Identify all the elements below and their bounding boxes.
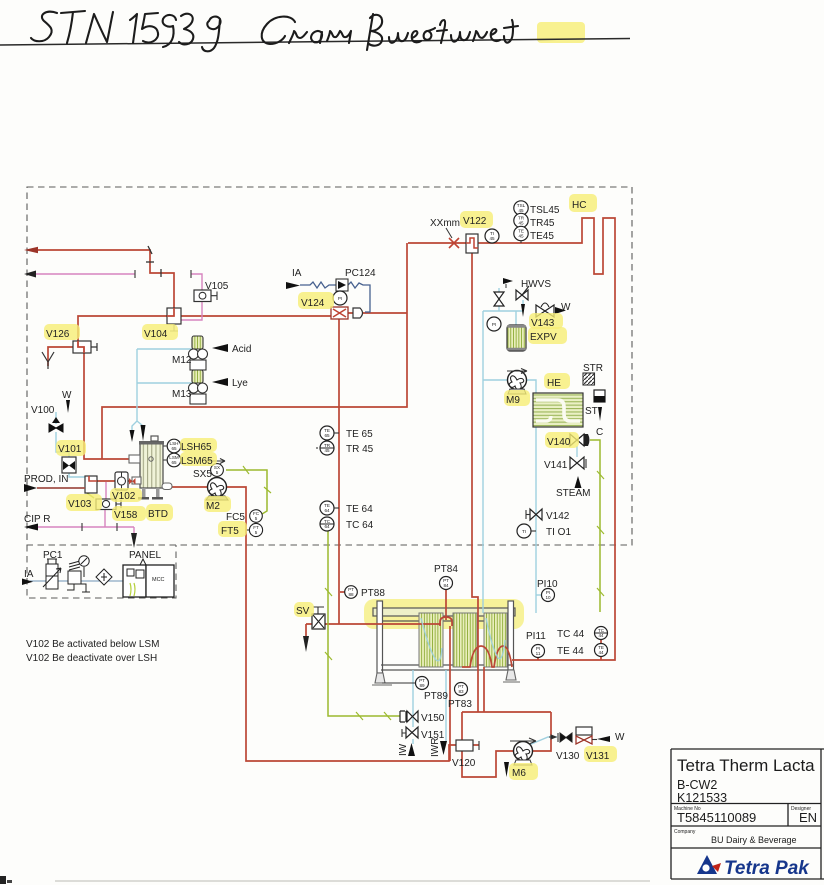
svg-text:Company: Company (674, 829, 696, 835)
svg-text:65: 65 (324, 433, 330, 438)
svg-text:84: 84 (443, 583, 449, 588)
svg-text:Tetra Pak: Tetra Pak (724, 858, 810, 879)
svg-text:Lye: Lye (232, 378, 248, 389)
svg-text:PC124: PC124 (345, 268, 376, 279)
svg-text:V124: V124 (301, 298, 325, 309)
svg-text:TI O1: TI O1 (546, 527, 571, 538)
svg-text:FT5: FT5 (221, 526, 239, 537)
svg-text:M2: M2 (206, 501, 220, 512)
svg-text:V141: V141 (544, 460, 568, 471)
svg-text:V130: V130 (556, 751, 580, 762)
svg-text:TE45: TE45 (530, 231, 554, 242)
svg-text:44: 44 (598, 633, 604, 638)
svg-text:HC: HC (572, 200, 586, 211)
svg-text:IA: IA (292, 268, 302, 279)
svg-text:PROD, IN: PROD, IN (24, 474, 68, 485)
svg-text:TR 45: TR 45 (346, 444, 374, 455)
svg-text:FC5: FC5 (226, 512, 245, 523)
svg-text:PT89: PT89 (424, 691, 448, 702)
svg-text:88: 88 (348, 592, 354, 597)
svg-text:W: W (615, 732, 625, 743)
svg-text:TC 44: TC 44 (557, 629, 585, 640)
svg-text:45: 45 (518, 221, 524, 226)
svg-text:CIP R: CIP R (24, 514, 51, 525)
svg-text:LSH65: LSH65 (181, 442, 212, 453)
svg-text:V103: V103 (68, 499, 92, 510)
svg-text:PT88: PT88 (361, 588, 385, 599)
svg-text:PT84: PT84 (434, 564, 458, 575)
svg-text:Tetra Therm Lacta: Tetra Therm Lacta (677, 756, 815, 775)
svg-text:T5845110089: T5845110089 (677, 810, 756, 825)
svg-text:45: 45 (518, 234, 524, 239)
svg-text:V150: V150 (421, 713, 445, 724)
svg-text:V100: V100 (31, 405, 55, 416)
svg-text:PI: PI (492, 322, 496, 327)
svg-text:IWR: IWR (430, 738, 441, 757)
svg-text:EXPV: EXPV (530, 332, 557, 343)
svg-text:IW: IW (398, 743, 409, 756)
svg-text:PI: PI (338, 296, 342, 301)
svg-text:89: 89 (419, 683, 425, 688)
svg-text:C: C (596, 427, 603, 438)
svg-text:V143: V143 (531, 318, 555, 329)
svg-text:PI11: PI11 (526, 631, 546, 642)
svg-text:STEAM: STEAM (556, 488, 590, 499)
svg-text:11: 11 (536, 651, 541, 656)
svg-text:LSM65: LSM65 (181, 456, 213, 467)
svg-text:V102 Be deactivate over LS: V102 Be deactivate over LSH (26, 653, 157, 664)
svg-text:K121533: K121533 (677, 791, 727, 805)
svg-text:PI10: PI10 (537, 579, 558, 590)
svg-text:IA: IA (24, 569, 34, 580)
svg-text:PANEL: PANEL (129, 550, 161, 561)
svg-text:STR: STR (583, 363, 603, 374)
svg-text:HWVS: HWVS (521, 279, 551, 290)
svg-text:TR45: TR45 (530, 218, 555, 229)
svg-text:BTD: BTD (148, 509, 168, 520)
svg-text:V101: V101 (58, 444, 82, 455)
svg-text:5: 5 (255, 516, 258, 521)
svg-text:5: 5 (216, 470, 219, 475)
svg-text:65: 65 (171, 446, 177, 451)
svg-text:XXmm: XXmm (430, 218, 460, 229)
svg-text:B-CW2: B-CW2 (677, 778, 717, 792)
svg-text:TC 64: TC 64 (346, 520, 374, 531)
svg-text:44: 44 (598, 650, 604, 655)
svg-text:V140: V140 (547, 437, 571, 448)
svg-text:M6: M6 (512, 768, 526, 779)
svg-text:45: 45 (489, 236, 495, 241)
svg-text:M9: M9 (506, 395, 520, 406)
svg-text:V102 Be activated below LS: V102 Be activated below LSM (26, 639, 159, 650)
svg-text:SX5: SX5 (193, 469, 212, 480)
svg-text:V102: V102 (112, 491, 136, 502)
svg-text:TSL45: TSL45 (530, 205, 560, 216)
svg-text:Acid: Acid (232, 344, 251, 355)
svg-text:V158: V158 (114, 510, 138, 521)
svg-text:EN: EN (799, 810, 817, 825)
svg-text:TE 64: TE 64 (346, 504, 373, 515)
svg-text:V122: V122 (463, 216, 487, 227)
svg-text:V104: V104 (144, 329, 168, 340)
svg-text:83: 83 (458, 689, 464, 694)
svg-text:MCC: MCC (152, 577, 165, 583)
svg-text:5: 5 (255, 530, 258, 535)
svg-text:TE 65: TE 65 (346, 429, 373, 440)
svg-text:45: 45 (324, 448, 330, 453)
svg-text:PC1: PC1 (43, 550, 63, 561)
svg-text:V105: V105 (205, 281, 229, 292)
svg-text:W: W (561, 302, 571, 313)
svg-text:PT83: PT83 (448, 699, 472, 710)
svg-text:BU Dairy & Beverage: BU Dairy & Beverage (711, 835, 797, 845)
svg-text:W: W (62, 390, 72, 401)
svg-text:M12: M12 (172, 355, 192, 366)
svg-text:65: 65 (171, 460, 177, 465)
svg-text:V142: V142 (546, 511, 570, 522)
svg-text:64: 64 (324, 524, 330, 529)
svg-text:M13: M13 (172, 389, 192, 400)
svg-text:64: 64 (324, 508, 330, 513)
svg-text:45: 45 (518, 208, 524, 213)
svg-text:ST: ST (585, 406, 598, 417)
svg-text:V120: V120 (452, 758, 476, 769)
svg-text:TI: TI (522, 529, 526, 534)
svg-text:SV: SV (296, 606, 310, 617)
svg-text:V131: V131 (586, 751, 610, 762)
svg-text:TE 44: TE 44 (557, 646, 584, 657)
svg-text:V126: V126 (46, 329, 70, 340)
svg-text:10: 10 (545, 595, 551, 600)
svg-text:HE: HE (547, 378, 561, 389)
